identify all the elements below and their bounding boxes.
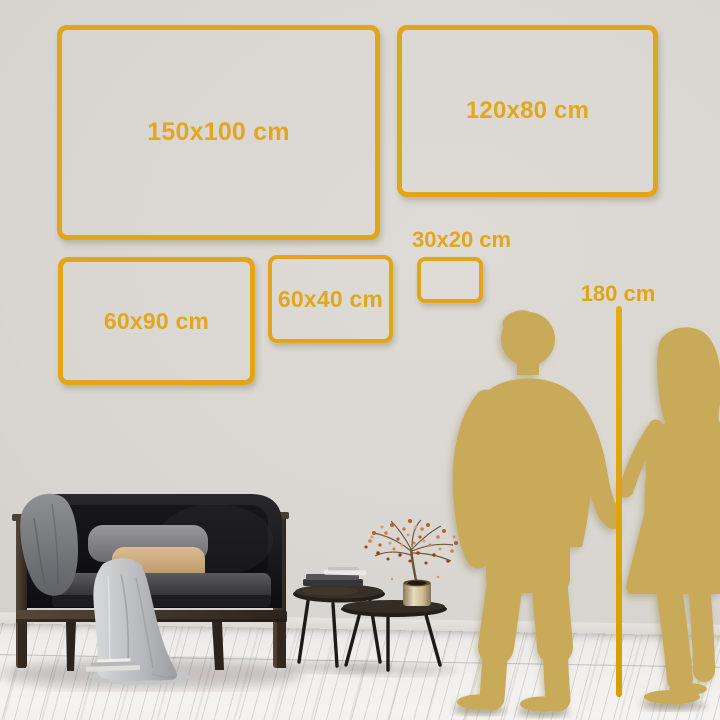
height-ruler-line (616, 306, 622, 697)
size-label-60x40: 60x40 cm (278, 286, 383, 313)
man-silhouette (457, 307, 622, 712)
size-label-60x90: 60x90 cm (104, 308, 209, 335)
coffee-table-small (341, 600, 447, 670)
couple-silhouettes (438, 295, 720, 720)
size-label-150x100: 150x100 cm (147, 118, 289, 147)
size-label-30x20: 30x20 cm (412, 227, 511, 253)
size-guide-scene: 150x100 cm 120x80 cm 60x90 cm 60x40 cm 3… (0, 0, 720, 720)
coffee-table-large (293, 585, 385, 667)
woman-silhouette (619, 327, 720, 704)
size-label-120x80: 120x80 cm (466, 97, 589, 125)
sofa (2, 494, 302, 689)
size-frame-60x40: 60x40 cm (268, 255, 393, 343)
size-frame-120x80: 120x80 cm (397, 25, 658, 197)
brass-vase (403, 580, 431, 606)
size-frame-60x90: 60x90 cm (58, 257, 255, 385)
size-frame-150x100: 150x100 cm (57, 25, 380, 240)
table-books (303, 567, 366, 586)
